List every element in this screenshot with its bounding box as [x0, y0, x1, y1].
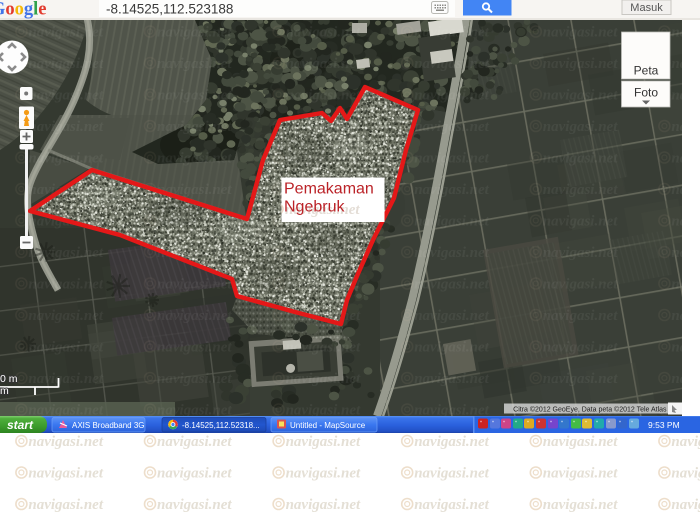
svg-text:navigasi.net: navigasi.net — [414, 497, 489, 513]
svg-text:navigasi.net: navigasi.net — [671, 88, 700, 104]
svg-text:navigasi.net: navigasi.net — [543, 182, 618, 198]
svg-text:navigasi.net: navigasi.net — [286, 88, 361, 104]
svg-text:navigasi.net: navigasi.net — [28, 25, 103, 41]
svg-text:navigasi.net: navigasi.net — [157, 277, 232, 293]
svg-text:navigasi.net: navigasi.net — [286, 56, 361, 72]
svg-text:navigasi.net: navigasi.net — [414, 466, 489, 482]
svg-text:Masuk: Masuk — [630, 2, 663, 14]
svg-text:navigasi.net: navigasi.net — [414, 277, 489, 293]
svg-text:navigasi.net: navigasi.net — [157, 56, 232, 72]
svg-text:navigasi.net: navigasi.net — [671, 182, 700, 198]
svg-text:navigasi.net: navigasi.net — [157, 340, 232, 356]
svg-text:navigasi.net: navigasi.net — [414, 182, 489, 198]
svg-text:navigasi.net: navigasi.net — [414, 434, 489, 450]
svg-text:navigasi.net: navigasi.net — [671, 497, 700, 513]
svg-text:navigasi.net: navigasi.net — [28, 497, 103, 513]
svg-text:navigasi.net: navigasi.net — [286, 340, 361, 356]
svg-text:navigasi.net: navigasi.net — [543, 308, 618, 324]
svg-text:m: m — [0, 385, 9, 397]
svg-text:navigasi.net: navigasi.net — [543, 434, 618, 450]
svg-text:navigasi.net: navigasi.net — [543, 25, 618, 41]
svg-text:navigasi.net: navigasi.net — [671, 214, 700, 230]
svg-text:navigasi.net: navigasi.net — [414, 88, 489, 104]
svg-text:navigasi.net: navigasi.net — [157, 497, 232, 513]
svg-text:navigasi.net: navigasi.net — [543, 214, 618, 230]
svg-text:navigasi.net: navigasi.net — [671, 434, 700, 450]
svg-text:navigasi.net: navigasi.net — [543, 56, 618, 72]
svg-text:navigasi.net: navigasi.net — [414, 119, 489, 135]
svg-text:Untitled - MapSource: Untitled - MapSource — [290, 421, 366, 430]
svg-text:navigasi.net: navigasi.net — [28, 466, 103, 482]
svg-text:navigasi.net: navigasi.net — [28, 182, 103, 198]
svg-text:navigasi.net: navigasi.net — [157, 151, 232, 167]
svg-text:navigasi.net: navigasi.net — [543, 88, 618, 104]
svg-text:navigasi.net: navigasi.net — [286, 151, 361, 167]
svg-text:navigasi.net: navigasi.net — [671, 340, 700, 356]
svg-text:navigasi.net: navigasi.net — [28, 340, 103, 356]
svg-text:Google: Google — [0, 0, 47, 20]
svg-text:navigasi.net: navigasi.net — [28, 277, 103, 293]
svg-text:navigasi.net: navigasi.net — [543, 119, 618, 135]
svg-text:navigasi.net: navigasi.net — [543, 466, 618, 482]
svg-text:navigasi.net: navigasi.net — [286, 371, 361, 387]
svg-text:navigasi.net: navigasi.net — [543, 497, 618, 513]
svg-text:navigasi.net: navigasi.net — [414, 151, 489, 167]
svg-text:navigasi.net: navigasi.net — [286, 119, 361, 135]
svg-text:navigasi.net: navigasi.net — [286, 245, 361, 261]
svg-text:0 m: 0 m — [0, 373, 18, 385]
svg-text:navigasi.net: navigasi.net — [671, 371, 700, 387]
svg-text:navigasi.net: navigasi.net — [157, 466, 232, 482]
svg-text:navigasi.net: navigasi.net — [414, 214, 489, 230]
svg-text:navigasi.net: navigasi.net — [671, 277, 700, 293]
svg-text:navigasi.net: navigasi.net — [671, 119, 700, 135]
svg-text:navigasi.net: navigasi.net — [414, 371, 489, 387]
svg-text:Ngebruk: Ngebruk — [284, 199, 345, 216]
svg-text:-8.14525,112.523188: -8.14525,112.523188 — [106, 2, 233, 17]
svg-text:navigasi.net: navigasi.net — [157, 25, 232, 41]
svg-text:-8.14525,112.52318...: -8.14525,112.52318... — [182, 421, 260, 430]
svg-text:navigasi.net: navigasi.net — [28, 245, 103, 261]
svg-text:navigasi.net: navigasi.net — [286, 434, 361, 450]
svg-text:navigasi.net: navigasi.net — [28, 119, 103, 135]
svg-text:navigasi.net: navigasi.net — [157, 371, 232, 387]
svg-text:Citra ©2012 GeoEye, Data peta: Citra ©2012 GeoEye, Data peta ©2012 Tele… — [513, 405, 671, 413]
svg-text:navigasi.net: navigasi.net — [157, 119, 232, 135]
svg-text:Pemakaman: Pemakaman — [284, 181, 374, 198]
svg-text:navigasi.net: navigasi.net — [414, 245, 489, 261]
svg-text:navigasi.net: navigasi.net — [286, 497, 361, 513]
svg-text:Foto: Foto — [634, 86, 658, 100]
svg-text:navigasi.net: navigasi.net — [286, 466, 361, 482]
svg-text:navigasi.net: navigasi.net — [28, 308, 103, 324]
svg-text:navigasi.net: navigasi.net — [28, 88, 103, 104]
svg-text:navigasi.net: navigasi.net — [28, 151, 103, 167]
svg-text:navigasi.net: navigasi.net — [671, 56, 700, 72]
svg-text:navigasi.net: navigasi.net — [28, 371, 103, 387]
svg-text:navigasi.net: navigasi.net — [157, 434, 232, 450]
svg-text:start: start — [7, 418, 34, 432]
svg-text:navigasi.net: navigasi.net — [671, 25, 700, 41]
svg-text:navigasi.net: navigasi.net — [671, 308, 700, 324]
svg-text:navigasi.net: navigasi.net — [543, 277, 618, 293]
svg-text:navigasi.net: navigasi.net — [543, 340, 618, 356]
svg-text:navigasi.net: navigasi.net — [414, 25, 489, 41]
svg-text:navigasi.net: navigasi.net — [543, 245, 618, 261]
svg-text:navigasi.net: navigasi.net — [286, 25, 361, 41]
svg-text:Peta: Peta — [634, 64, 659, 78]
svg-text:navigasi.net: navigasi.net — [414, 56, 489, 72]
svg-text:navigasi.net: navigasi.net — [543, 371, 618, 387]
svg-text:navigasi.net: navigasi.net — [671, 245, 700, 261]
svg-text:navigasi.net: navigasi.net — [414, 340, 489, 356]
svg-text:navigasi.net: navigasi.net — [157, 88, 232, 104]
svg-text:navigasi.net: navigasi.net — [28, 56, 103, 72]
svg-text:navigasi.net: navigasi.net — [671, 466, 700, 482]
svg-text:AXIS Broadband 3G: AXIS Broadband 3G — [72, 421, 145, 430]
svg-text:9:53 PM: 9:53 PM — [648, 420, 680, 430]
svg-text:navigasi.net: navigasi.net — [157, 308, 232, 324]
svg-text:navigasi.net: navigasi.net — [543, 151, 618, 167]
svg-text:navigasi.net: navigasi.net — [28, 434, 103, 450]
svg-text:navigasi.net: navigasi.net — [414, 308, 489, 324]
svg-text:navigasi.net: navigasi.net — [157, 214, 232, 230]
svg-text:navigasi.net: navigasi.net — [671, 151, 700, 167]
